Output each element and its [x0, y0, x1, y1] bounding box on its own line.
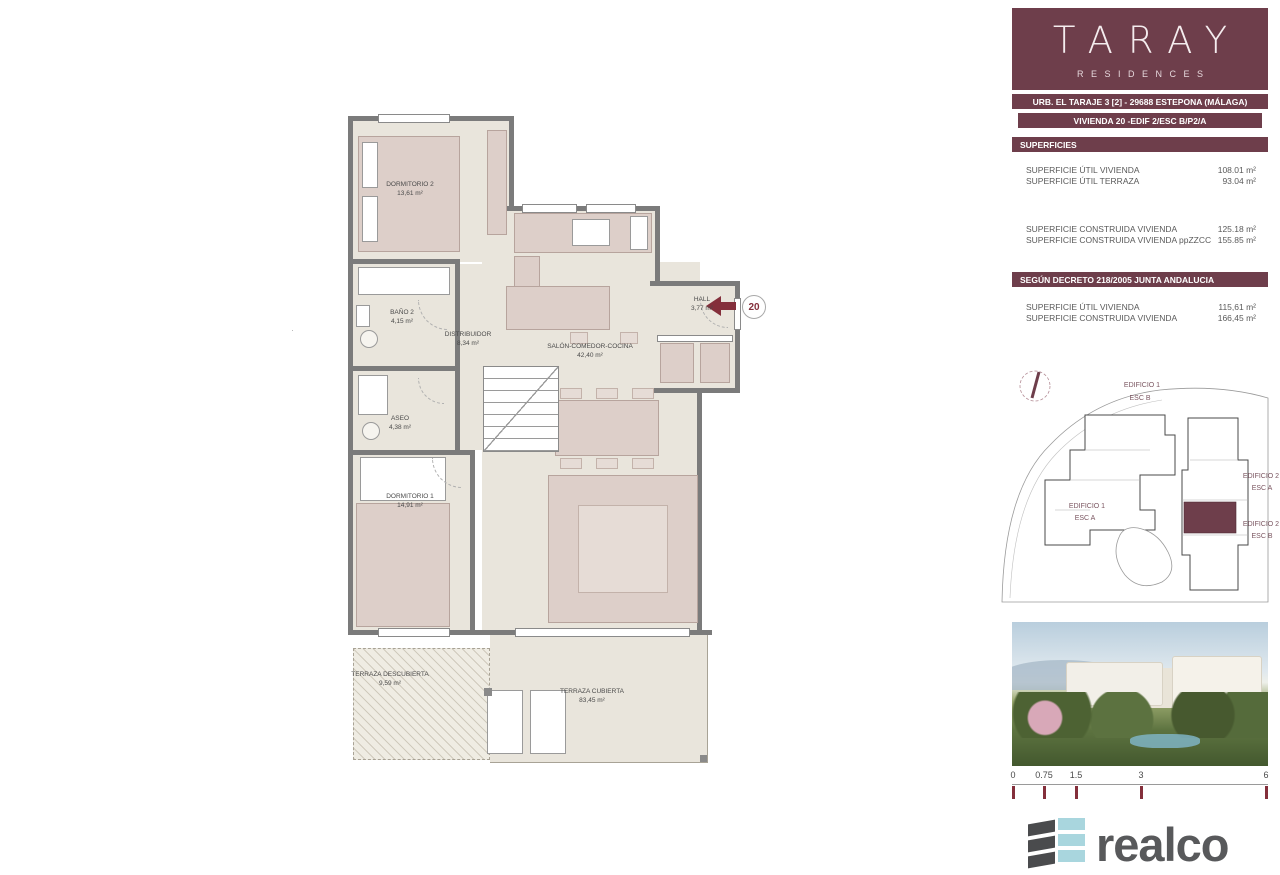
wall	[655, 206, 660, 286]
wall	[509, 116, 514, 211]
highlighted-unit	[1184, 502, 1236, 533]
photo-pool	[1130, 734, 1200, 748]
compass-needle	[1032, 372, 1039, 398]
terrace-edge	[490, 762, 708, 763]
chair	[632, 458, 654, 469]
chair	[596, 388, 618, 399]
siteplan-label: EDIFICIO 2	[1243, 473, 1279, 480]
brand-subtitle: RESIDENCES	[1069, 69, 1210, 79]
superficie-row: SUPERFICIE ÚTIL TERRAZA 93.04 m²	[1026, 176, 1256, 186]
chair	[560, 388, 582, 399]
siteplan-label: ESC A	[1252, 485, 1273, 492]
wall	[650, 281, 740, 286]
wall	[650, 388, 740, 393]
scale-line	[1012, 784, 1268, 785]
realco-wordmark: realco	[1096, 821, 1228, 868]
window	[586, 204, 636, 213]
decreto-header: SEGÚN DECRETO 218/2005 JUNTA ANDALUCIA	[1012, 272, 1268, 287]
label-salon: SALÓN-COMEDOR-COCINA 42,40 m²	[547, 343, 633, 361]
terrace-edge	[707, 635, 708, 763]
pillow	[362, 196, 378, 242]
siteplan-label: EDIFICIO 1	[1124, 382, 1160, 389]
room-terraza-descubierta	[353, 648, 490, 760]
plan-sheet: 20 DORMITORIO 2 13,61 m² BAÑO 2 4,15 m² …	[0, 0, 1280, 875]
label-aseo: ASEO 4,38 m²	[389, 415, 411, 433]
brand-name: TARAY	[1038, 19, 1242, 62]
scale-number: 0.75	[1035, 770, 1053, 780]
unit-number: 20	[748, 302, 759, 313]
pillow	[362, 142, 378, 188]
superficie-row: SUPERFICIE CONSTRUIDA VIVIENDA ppZZCC 15…	[1026, 235, 1256, 245]
wall	[455, 259, 460, 455]
scale-tick	[1012, 786, 1015, 799]
chair	[596, 458, 618, 469]
wall	[348, 116, 353, 635]
label-terraza-descubierta: TERRAZA DESCUBIERTA 9,59 m²	[351, 671, 428, 689]
superficie-row: SUPERFICIE ÚTIL VIVIENDA 115,61 m²	[1026, 302, 1256, 312]
chair	[560, 458, 582, 469]
brand-logo-block: TARAY RESIDENCES	[1012, 8, 1268, 90]
terrace-chair	[700, 343, 730, 383]
scale-tick	[1140, 786, 1143, 799]
window	[378, 628, 450, 637]
label-distribuidor: DISTRIBUIDOR 8,34 m²	[445, 331, 492, 349]
superficie-row: SUPERFICIE ÚTIL VIVIENDA 108.01 m²	[1026, 165, 1256, 175]
shower	[358, 375, 388, 415]
label-bano-2: BAÑO 2 4,15 m²	[390, 309, 414, 327]
terrace-column	[484, 688, 492, 696]
window	[522, 204, 577, 213]
bed-dorm1	[356, 503, 450, 627]
wardrobe	[487, 130, 507, 235]
siteplan-label: ESC A	[1075, 515, 1096, 522]
superficies-header: SUPERFICIES	[1012, 137, 1268, 152]
toilet	[360, 330, 378, 348]
photo-flowering-tree	[1018, 698, 1072, 742]
scale-number: 1.5	[1070, 770, 1083, 780]
site-plan: EDIFICIO 1 ESC B EDIFICIO 1 ESC A EDIFIC…	[990, 360, 1280, 610]
window	[378, 114, 450, 123]
label-terraza-cubierta: TERRAZA CUBIERTA 83,45 m²	[560, 688, 624, 706]
superficie-row: SUPERFICIE CONSTRUIDA VIVIENDA 166,45 m²	[1026, 313, 1256, 323]
entry-arrow-shaft	[720, 302, 736, 310]
scale-number: 0	[1010, 770, 1015, 780]
label-dormitorio-1: DORMITORIO 1 14,91 m²	[386, 493, 434, 511]
sink	[356, 305, 370, 327]
scale-tick	[1075, 786, 1078, 799]
realco-logo: realco	[1028, 816, 1228, 872]
siteplan-label: EDIFICIO 2	[1243, 521, 1279, 528]
scale-tick	[1043, 786, 1046, 799]
scale-tick	[1265, 786, 1268, 799]
pool-outline	[1116, 528, 1172, 586]
stool	[570, 332, 588, 344]
wall	[348, 259, 460, 264]
wall	[348, 366, 460, 371]
stairs	[483, 366, 559, 452]
lounger	[487, 690, 523, 754]
siteplan-label: EDIFICIO 1	[1069, 503, 1105, 510]
label-dormitorio-2: DORMITORIO 2 13,61 m²	[386, 181, 434, 199]
realco-building-icon	[1028, 816, 1090, 872]
kitchen-sink	[572, 219, 610, 246]
siteplan-label: ESC B	[1129, 395, 1150, 402]
unit-number-badge: 20	[742, 295, 766, 319]
scale-number: 6	[1263, 770, 1268, 780]
building-render-photo	[1012, 622, 1268, 766]
door-arc	[292, 330, 293, 331]
terrace-chair	[660, 343, 694, 383]
window	[657, 335, 733, 342]
fridge	[630, 216, 648, 250]
address-bar: URB. EL TARAJE 3 [2] - 29688 ESTEPONA (M…	[1012, 94, 1268, 109]
bathtub	[358, 267, 450, 295]
dining-table	[555, 400, 659, 456]
coffee-table	[578, 505, 668, 593]
chair	[632, 388, 654, 399]
kitchen-island	[506, 286, 610, 330]
scale-number: 3	[1138, 770, 1143, 780]
stool	[620, 332, 638, 344]
wall	[470, 455, 475, 635]
siteplan-label: ESC B	[1251, 533, 1272, 540]
label-hall: HALL 3,77 m²	[691, 296, 713, 314]
unit-bar: VIVIENDA 20 -EDIF 2/ESC B/P2/A	[1018, 113, 1262, 128]
toilet	[362, 422, 380, 440]
glass-door	[515, 628, 690, 637]
superficie-row: SUPERFICIE CONSTRUIDA VIVIENDA 125.18 m²	[1026, 224, 1256, 234]
